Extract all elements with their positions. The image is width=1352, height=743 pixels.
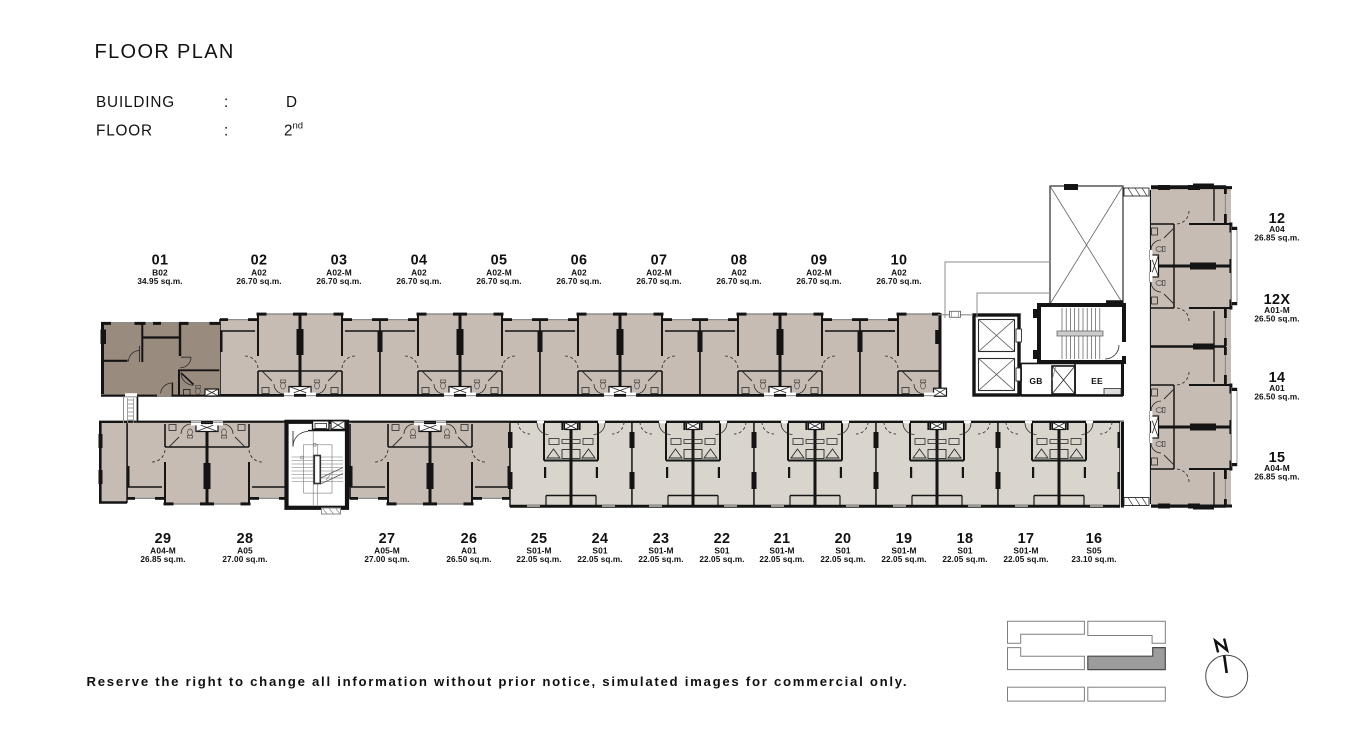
svg-text:22.05 sq.m.: 22.05 sq.m. [699,555,744,564]
svg-text:A02: A02 [731,268,747,278]
svg-text:26.70 sq.m.: 26.70 sq.m. [796,277,841,286]
svg-text:Reserve the right to change al: Reserve the right to change all informat… [87,674,909,689]
svg-text:34.95 sq.m.: 34.95 sq.m. [137,277,182,286]
svg-text:S01-M: S01-M [648,546,673,556]
svg-text:S01: S01 [714,546,729,556]
svg-text:S01-M: S01-M [1013,546,1038,556]
svg-text:06: 06 [571,253,588,269]
svg-text:26.50 sq.m.: 26.50 sq.m. [1254,392,1299,401]
svg-text:27.00 sq.m.: 27.00 sq.m. [222,555,267,564]
svg-text:EE: EE [1091,376,1103,386]
svg-text:09: 09 [811,253,828,269]
svg-text:A02-M: A02-M [486,268,512,278]
svg-text:22.05 sq.m.: 22.05 sq.m. [577,555,622,564]
svg-text:26.50 sq.m.: 26.50 sq.m. [1254,314,1299,323]
svg-text::: : [224,123,229,140]
svg-text:A05: A05 [237,546,253,556]
svg-text:BUILDING: BUILDING [96,94,175,111]
svg-text:22.05 sq.m.: 22.05 sq.m. [881,555,926,564]
svg-text:26.85 sq.m.: 26.85 sq.m. [1254,233,1299,242]
svg-text:A02-M: A02-M [646,268,672,278]
svg-text:B02: B02 [152,268,168,278]
svg-text:A02: A02 [891,268,907,278]
svg-text:08: 08 [731,253,748,269]
svg-text:A01: A01 [1269,383,1285,393]
svg-text:26.70 sq.m.: 26.70 sq.m. [396,277,441,286]
svg-text:26.70 sq.m.: 26.70 sq.m. [636,277,681,286]
svg-text:26.70 sq.m.: 26.70 sq.m. [556,277,601,286]
svg-text::: : [224,94,229,111]
svg-text:A05-M: A05-M [374,546,400,556]
svg-text:26.70 sq.m.: 26.70 sq.m. [876,277,921,286]
svg-text:22.05 sq.m.: 22.05 sq.m. [820,555,865,564]
svg-text:S01-M: S01-M [891,546,916,556]
svg-text:22.05 sq.m.: 22.05 sq.m. [516,555,561,564]
svg-text:A04-M: A04-M [150,546,176,556]
svg-text:A02: A02 [411,268,427,278]
svg-text:26.85 sq.m.: 26.85 sq.m. [140,555,185,564]
svg-text:A01-M: A01-M [1264,305,1290,315]
svg-text:07: 07 [651,253,668,269]
svg-text:A04-M: A04-M [1264,463,1290,473]
svg-text:26.70 sq.m.: 26.70 sq.m. [316,277,361,286]
svg-text:22.05 sq.m.: 22.05 sq.m. [942,555,987,564]
svg-text:26.85 sq.m.: 26.85 sq.m. [1254,472,1299,481]
svg-text:23.10 sq.m.: 23.10 sq.m. [1071,555,1116,564]
svg-text:02: 02 [251,253,268,269]
svg-text:A02: A02 [251,268,267,278]
svg-text:26.70 sq.m.: 26.70 sq.m. [236,277,281,286]
svg-text:GB: GB [1029,376,1042,386]
svg-text:05: 05 [491,253,508,269]
svg-text:22.05 sq.m.: 22.05 sq.m. [759,555,804,564]
svg-text:S01-M: S01-M [769,546,794,556]
svg-text:27.00 sq.m.: 27.00 sq.m. [364,555,409,564]
svg-text:A01: A01 [461,546,477,556]
svg-text:A02-M: A02-M [806,268,832,278]
svg-text:22.05 sq.m.: 22.05 sq.m. [1003,555,1048,564]
svg-text:S01: S01 [592,546,607,556]
svg-text:26.70 sq.m.: 26.70 sq.m. [476,277,521,286]
svg-text:22.05 sq.m.: 22.05 sq.m. [638,555,683,564]
svg-text:2nd: 2nd [284,121,303,140]
svg-text:S01-M: S01-M [526,546,551,556]
svg-text:26.50 sq.m.: 26.50 sq.m. [446,555,491,564]
svg-text:S05: S05 [1086,546,1101,556]
svg-text:26.70 sq.m.: 26.70 sq.m. [716,277,761,286]
svg-text:03: 03 [331,253,348,269]
svg-text:S01: S01 [835,546,850,556]
svg-text:04: 04 [411,253,428,269]
svg-text:01: 01 [152,253,169,269]
svg-text:FLOOR PLAN: FLOOR PLAN [95,41,235,63]
svg-text:FLOOR: FLOOR [96,123,153,140]
svg-text:10: 10 [891,253,908,269]
svg-text:A02-M: A02-M [326,268,352,278]
svg-text:A04: A04 [1269,224,1285,234]
svg-text:A02: A02 [571,268,587,278]
svg-text:D: D [286,94,298,111]
svg-text:S01: S01 [957,546,972,556]
